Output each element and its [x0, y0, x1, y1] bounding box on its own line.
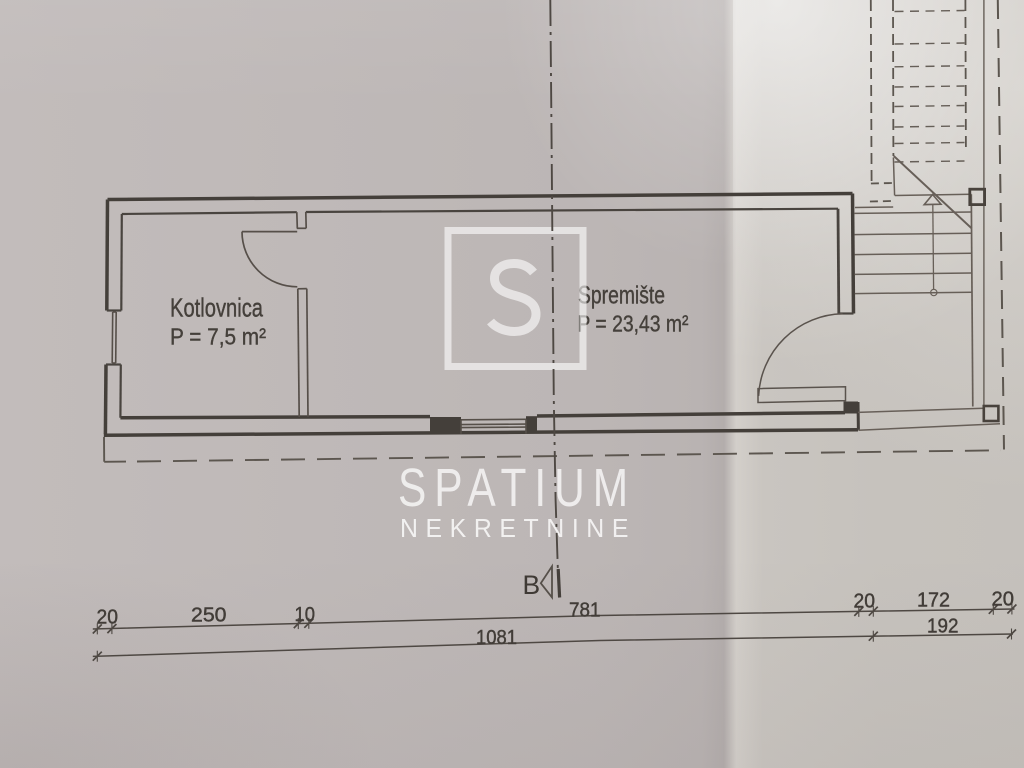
svg-text:Spremište: Spremište [578, 282, 665, 310]
svg-text:1081: 1081 [476, 626, 517, 649]
svg-text:20: 20 [854, 590, 876, 613]
svg-text:192: 192 [927, 615, 959, 638]
svg-text:20: 20 [97, 606, 119, 629]
svg-text:172: 172 [917, 589, 950, 612]
svg-text:10: 10 [295, 603, 316, 626]
svg-text:P = 7,5 m²: P = 7,5 m² [170, 324, 266, 350]
svg-text:250: 250 [191, 604, 227, 627]
svg-text:781: 781 [569, 599, 601, 622]
svg-text:20: 20 [992, 588, 1015, 611]
svg-text:NEKRETNINE: NEKRETNINE [400, 513, 636, 543]
svg-text:P = 23,43 m²: P = 23,43 m² [578, 311, 689, 337]
svg-text:Kotlovnica: Kotlovnica [170, 293, 263, 323]
svg-text:SPATIUM: SPATIUM [398, 459, 636, 518]
svg-text:B: B [523, 570, 541, 600]
